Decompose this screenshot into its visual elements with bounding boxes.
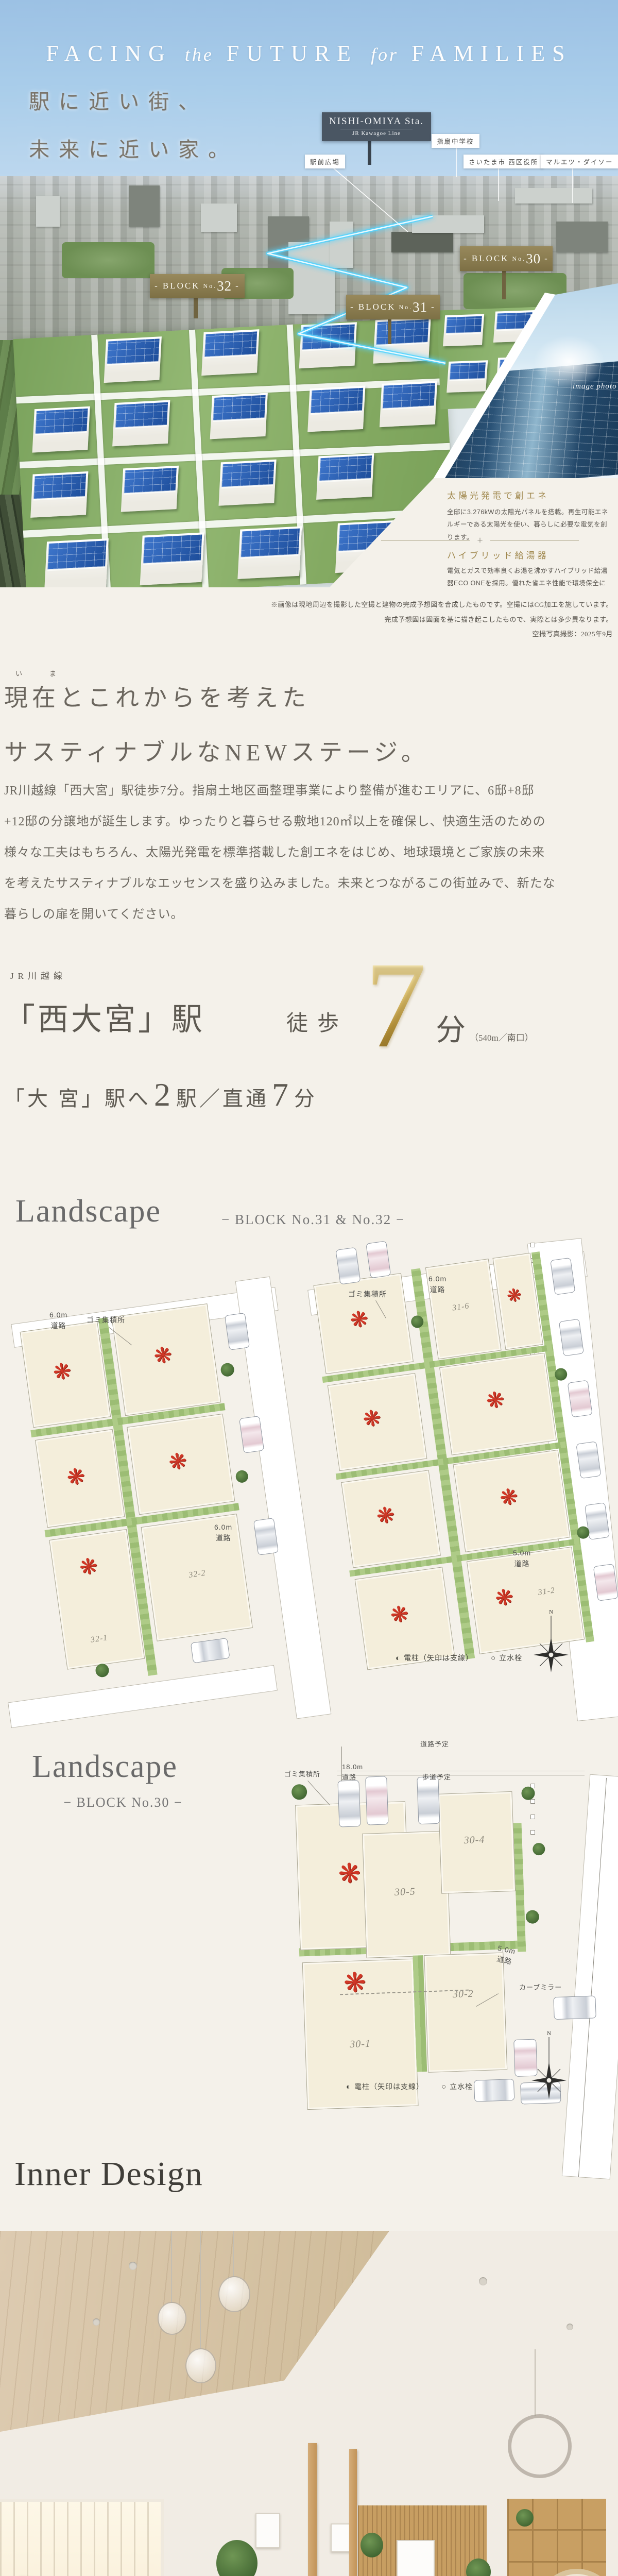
compass: N	[530, 1607, 572, 1674]
map-label-school: 指扇中学校	[432, 134, 479, 148]
house	[447, 360, 488, 393]
road-width-label: 6.0m 道路	[428, 1274, 447, 1295]
furigana-i: い	[15, 668, 23, 678]
car	[559, 1319, 584, 1357]
curve-mirror-label: カーブミラー	[519, 1982, 562, 1993]
car	[253, 1518, 279, 1555]
map-label-plaza: 駅前広場	[305, 155, 345, 168]
trash-site-label: ゴミ集積所	[284, 1769, 320, 1780]
hero-section: FACING the FUTURE for FAMILIES 駅に近い街、 未来…	[0, 0, 618, 587]
building	[515, 188, 592, 204]
plus-divider: +	[381, 535, 579, 547]
hybrid-body: 電気とガスで効率良くお湯を沸かすハイブリッド給湯器ECO ONEを採用。優れた省…	[447, 565, 611, 587]
concept-paragraph: JR川越線「西大宮」駅徒歩7分。指扇土地区画整理事業により整備が進むエリアに、6…	[4, 775, 556, 930]
minutes-unit: 分	[436, 1006, 466, 1049]
headline-word: FUTURE	[227, 41, 358, 66]
landscape1-title: Landscape	[15, 1193, 161, 1230]
lot: ❋	[127, 1414, 235, 1515]
pendant-cord	[535, 2349, 536, 2416]
car	[474, 2079, 514, 2102]
hero-headline: FACING the FUTURE for FAMILIES	[0, 40, 618, 66]
station-sign-pole	[368, 140, 371, 165]
building	[288, 242, 335, 314]
station-name: 「西大宮」駅	[4, 994, 205, 1039]
paragraph-line: を考えたサスティナブルなエッセンスを盛り込みました。未来とつながるこの街並みで、…	[4, 868, 556, 899]
car	[365, 1776, 388, 1825]
building	[330, 222, 353, 268]
road-width-label: 5.0m 道路	[513, 1548, 531, 1569]
building	[201, 204, 237, 232]
headline-word: for	[371, 44, 399, 65]
house	[121, 466, 179, 512]
house	[44, 538, 109, 587]
pendant-light	[185, 2348, 216, 2383]
headline-word: FAMILIES	[411, 41, 572, 66]
house	[140, 532, 204, 585]
wood-post	[349, 2449, 357, 2576]
headline-word: the	[185, 44, 214, 65]
paragraph-line: 様々な工夫はもちろん、太陽光発電を標準搭載した創エネをはじめ、地球環境とご家族の…	[4, 837, 556, 868]
station-sign-line: JR Kawagoe Line	[340, 129, 413, 137]
inner-design-title: Inner Design	[14, 2155, 203, 2194]
car	[239, 1416, 264, 1453]
access-number: 2	[154, 1076, 173, 1114]
house	[307, 386, 365, 432]
building	[412, 215, 484, 233]
house	[443, 314, 484, 346]
lot: 30-4	[438, 1791, 516, 1894]
car	[417, 1776, 440, 1824]
interior-photo-1	[0, 2231, 618, 2576]
ceiling-spotlight	[566, 2324, 573, 2330]
car	[593, 1564, 618, 1601]
tree	[521, 1786, 535, 1800]
tree	[291, 1784, 307, 1800]
station-sign-name: NISHI-OMIYA Sta.	[322, 116, 431, 127]
road-width-label: 6.0m 道路	[214, 1522, 232, 1544]
block-sign-31: - BLOCK No. 31 -	[346, 295, 440, 319]
block-sign-30: - BLOCK No. 30 -	[460, 246, 553, 271]
landscape2-title: Landscape	[32, 1749, 178, 1785]
access-text: 分	[294, 1082, 317, 1112]
plant	[360, 2533, 383, 2557]
hero-tagline-2: 未来に近い家。	[29, 133, 238, 163]
car	[191, 1638, 230, 1664]
building	[391, 232, 453, 252]
tree	[525, 1910, 539, 1924]
solar-heading: 太陽光発電で創エネ	[447, 488, 549, 501]
planned-sidewalk-label: 歩道予定	[422, 1772, 451, 1783]
car	[366, 1241, 391, 1278]
tree	[235, 1469, 249, 1483]
wood-post	[308, 2443, 317, 2576]
concept-heading-2: サスティナブルなNEWステージ。	[4, 734, 429, 768]
car	[576, 1441, 601, 1479]
car	[225, 1313, 250, 1350]
lot: 30-5	[362, 1831, 451, 1958]
sun-glare	[530, 333, 608, 390]
landscape1-subtitle: − BLOCK No.31 & No.32 −	[221, 1212, 405, 1228]
road-width-label: 18.0m 道路	[342, 1762, 363, 1782]
car	[337, 1780, 360, 1827]
lot: ❋	[341, 1470, 441, 1568]
walk-label: 徒歩	[286, 1006, 348, 1037]
lot: ❋	[328, 1373, 427, 1471]
station-sign: NISHI-OMIYA Sta. JR Kawagoe Line	[322, 112, 431, 141]
block32-lots: ❋ ❋ ❋ 32-1 ❋ ❋ 32-2	[16, 1295, 315, 1687]
car	[568, 1380, 593, 1417]
green-field	[62, 242, 154, 278]
pendant-cord	[233, 2231, 234, 2277]
paragraph-line: +12邸の分譲地が誕生します。ゆったりと暮らせる敷地120㎡以上を確保し、快適生…	[4, 806, 556, 837]
furigana-ma: ま	[49, 668, 57, 678]
access-text: 「大 宮」駅へ	[4, 1082, 151, 1112]
distance-note: （540m／南口）	[470, 1030, 534, 1043]
lot: ❋	[313, 1273, 414, 1374]
lot: ❋	[20, 1321, 111, 1428]
planned-road-label: 道路予定	[420, 1739, 449, 1750]
wall-art	[255, 2513, 280, 2548]
window-blinds	[0, 2499, 164, 2576]
headline-word: FACING	[46, 41, 172, 66]
planned-road-line	[337, 1771, 585, 1771]
tree	[533, 1843, 545, 1856]
house	[373, 317, 431, 364]
house	[380, 381, 437, 427]
building	[129, 185, 160, 227]
compass: N	[528, 2029, 570, 2101]
building	[36, 196, 60, 227]
wall-art	[331, 2523, 351, 2552]
map-label-shops: マルエツ・ダイソー	[541, 155, 618, 168]
svg-text:N: N	[549, 1609, 553, 1615]
trash-site-label: ゴミ集積所	[348, 1289, 387, 1300]
page: FACING the FUTURE for FAMILIES 駅に近い街、 未来…	[0, 0, 618, 2576]
ring-light	[508, 2414, 572, 2478]
paragraph-line: JR川越線「西大宮」駅徒歩7分。指扇土地区画整理事業により整備が進むエリアに、6…	[4, 775, 556, 806]
utility-pole-icon: ◐	[346, 2082, 351, 2091]
plan-legend: ◐電柱（矢印は支線）○立水栓	[346, 2081, 473, 2092]
image-photo-label: image photo	[573, 382, 617, 391]
omiya-access: 「大 宮」駅へ 2 駅／直通 7 分	[4, 1076, 317, 1114]
house	[32, 406, 90, 453]
lot: ❋	[439, 1353, 557, 1455]
utility-pole-icon: ◐	[396, 1654, 401, 1663]
paragraph-line: 暮らしの扉を開いてください。	[4, 899, 556, 930]
road-width-label: 6.0m 道路	[49, 1310, 67, 1331]
landscape2-subtitle: − BLOCK No.30 −	[38, 1795, 208, 1810]
planned-road-line	[337, 1775, 585, 1775]
house	[299, 322, 357, 368]
house	[237, 526, 302, 579]
building	[556, 222, 608, 252]
disclaimer-line: 完成予想図は図面を基に描き起こしたもので、実際とは多少異なります。	[271, 613, 613, 628]
ceiling-spotlight	[129, 2262, 137, 2270]
faucet-icon: ○	[491, 1654, 496, 1663]
pendant-cord	[200, 2231, 201, 2349]
car	[550, 1258, 575, 1295]
access-number: 7	[272, 1076, 291, 1114]
plan-legend: ◐電柱（矢印は支線）○立水栓	[396, 1653, 522, 1663]
lot: ❋	[111, 1303, 221, 1416]
access-text: 駅／直通	[176, 1082, 269, 1112]
house	[201, 329, 259, 376]
concept-heading-1: 現在とこれからを考えた	[4, 679, 310, 713]
pendant-light	[218, 2276, 250, 2312]
house	[316, 453, 374, 500]
house	[104, 336, 162, 383]
disclaimer-line: 空撮写真撮影：2025年9月	[271, 627, 613, 642]
walk-minutes: 7	[365, 952, 426, 1057]
hero-disclaimers: ※画像は現地周辺を撮影した空撮と建物の完成予想図を合成したものです。空撮にはCG…	[271, 598, 613, 642]
house	[30, 471, 88, 518]
lot: ❋	[35, 1429, 125, 1528]
faucet-icon: ○	[441, 2082, 447, 2091]
ceiling-spotlight	[479, 2277, 487, 2285]
plus-icon: +	[477, 535, 483, 547]
car	[553, 1995, 596, 2020]
hybrid-heading: ハイブリッド給湯器	[447, 548, 549, 561]
block31-lots: ❋ ❋ ❋ ❋ 31-6 ❋ ❋ ❋ ❋ 31-2	[309, 1243, 618, 1673]
house	[218, 460, 276, 506]
hero-tagline-1: 駅に近い街、	[29, 85, 208, 115]
trash-site-label: ゴミ集積所	[87, 1315, 125, 1326]
rail-line-label: JR川越線	[10, 969, 66, 981]
house	[210, 393, 268, 439]
leaning-art	[397, 2540, 435, 2576]
disclaimer-line: ※画像は現地周辺を撮影した空撮と建物の完成予想図を合成したものです。空撮にはCG…	[271, 598, 613, 613]
tree	[220, 1362, 235, 1377]
svg-text:N: N	[547, 2030, 551, 2037]
lot: ❋	[453, 1450, 571, 1552]
plant	[216, 2540, 257, 2576]
ceiling-spotlight	[93, 2318, 100, 2326]
shelf-plant	[516, 2509, 534, 2527]
lot: 32-2	[141, 1514, 253, 1641]
house	[112, 400, 170, 446]
lot: 30-2	[424, 1953, 507, 2073]
car	[335, 1247, 360, 1285]
pendant-cord	[171, 2231, 172, 2303]
block-sign-32: - BLOCK No. 32 -	[150, 274, 245, 298]
pendant-light	[158, 2302, 186, 2335]
map-label-wardoffice: さいたま市 西区役所	[463, 155, 543, 168]
